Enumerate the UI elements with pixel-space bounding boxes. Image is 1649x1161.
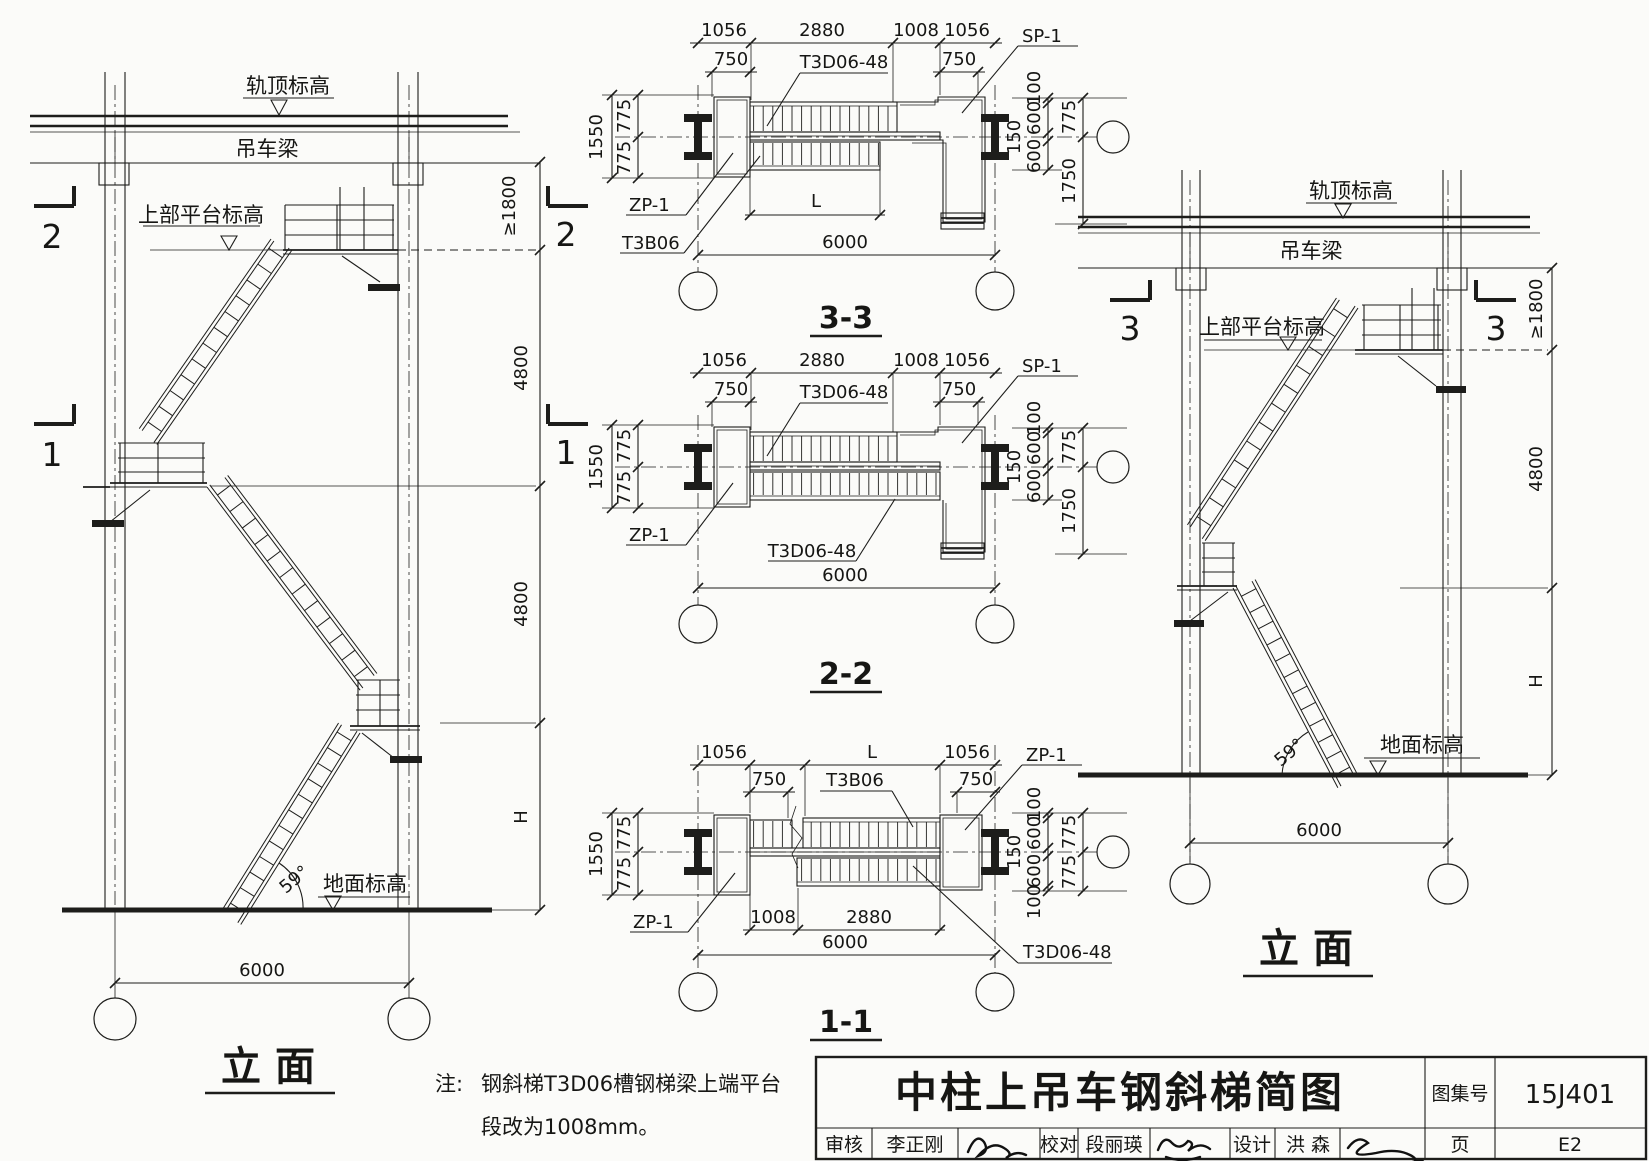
dim: 1750 — [1059, 158, 1080, 204]
svg-text:3: 3 — [1120, 309, 1141, 348]
dim: L — [867, 742, 877, 763]
note-prefix: 注: — [435, 1072, 463, 1096]
label-t3d06-48: T3D06-48 — [799, 52, 889, 73]
label-zp1: ZP-1 — [1026, 745, 1067, 766]
reviewer-label: 审核 — [825, 1134, 863, 1156]
atlas-number: 15J401 — [1525, 1080, 1615, 1110]
grid-bubble — [1097, 121, 1129, 153]
support-bracket — [368, 284, 400, 291]
title-block: 中柱上吊车钢斜梯简图 图集号 15J401 审核 李正刚 校对 段丽瑛 设计 洪… — [816, 1057, 1646, 1161]
designer-name: 洪 森 — [1286, 1134, 1330, 1156]
designer-label: 设计 — [1233, 1134, 1271, 1156]
platform-zp1 — [714, 815, 750, 895]
rail-top-level-label: 轨顶标高 — [246, 74, 330, 98]
dim: 600 — [1024, 101, 1045, 135]
dim: 775 — [614, 99, 635, 133]
support-bracket — [390, 756, 422, 763]
dim: 100 — [1024, 885, 1045, 919]
section-3-3: 1056 2880 1008 1056 750 750 1550 775 775… — [586, 20, 1129, 336]
section-title: 3-3 — [819, 301, 873, 336]
label-zp1: ZP-1 — [629, 195, 670, 216]
grid-bubble — [94, 998, 136, 1040]
dim: 775 — [614, 816, 635, 850]
label-t3d06-48: T3D06-48 — [799, 382, 889, 403]
dim-clearance: ≥1800 — [499, 176, 520, 237]
crane-beam-label: 吊车梁 — [1280, 239, 1343, 263]
dim: 100 — [1024, 71, 1045, 105]
label-t3d06-48: T3D06-48 — [1022, 942, 1112, 963]
platform-brace — [362, 733, 394, 758]
dim: 2880 — [799, 20, 845, 41]
dim: 775 — [1059, 815, 1080, 849]
reviewer-name: 李正刚 — [886, 1134, 943, 1156]
dim: 750 — [752, 769, 786, 790]
left-elevation-title: 立 面 — [221, 1044, 315, 1090]
grid-bubble — [976, 973, 1014, 1011]
dim: 6000 — [822, 232, 868, 253]
drawing-sheet: 轨顶标高 吊车梁 上部平台标高 — [0, 0, 1649, 1161]
grid-bubble — [976, 272, 1014, 310]
dim: 1750 — [1059, 488, 1080, 534]
dim: 775 — [614, 141, 635, 175]
dim: 600 — [1024, 431, 1045, 465]
dim: 1056 — [701, 20, 747, 41]
dim: 150 — [1004, 450, 1025, 484]
label-sp1: SP-1 — [1022, 26, 1062, 47]
page-number: E2 — [1558, 1134, 1582, 1156]
dim-4800: 4800 — [1526, 446, 1547, 492]
grid-bubble — [388, 998, 430, 1040]
grid-bubble — [679, 605, 717, 643]
section-marker-1-right: 1 — [548, 404, 588, 472]
grid-bubble — [679, 973, 717, 1011]
dim: 600 — [1024, 139, 1045, 173]
dim: L — [811, 191, 821, 212]
left-elevation-view: 轨顶标高 吊车梁 上部平台标高 — [30, 72, 588, 1093]
section-title: 1-1 — [819, 1005, 873, 1040]
section-marker-2-left: 2 — [34, 186, 74, 256]
dim: 1550 — [586, 114, 607, 160]
section-title: 2-2 — [819, 657, 873, 692]
span-dim: 6000 — [1296, 820, 1342, 841]
svg-text:3: 3 — [1486, 309, 1507, 348]
mid-platform — [1174, 543, 1237, 627]
support-bracket — [1174, 620, 1204, 627]
signature-reviewer — [968, 1139, 1026, 1158]
dim: 775 — [614, 471, 635, 505]
section-marker-3-left: 3 — [1110, 280, 1150, 348]
dim: 1056 — [944, 742, 990, 763]
section-2-2: 1056 2880 1008 1056 750 750 1550 775 775… — [586, 350, 1129, 692]
support-bracket — [92, 520, 124, 527]
right-elevation-dims: ≥1800 4800 H — [1526, 263, 1557, 780]
platform-brace — [110, 490, 150, 522]
dim: 600 — [1024, 816, 1045, 850]
rail-top-level-label: 轨顶标高 — [1309, 179, 1393, 203]
checker-name: 段丽瑛 — [1085, 1134, 1142, 1156]
left-elevation-dims: ≥1800 4800 4800 H — [499, 157, 545, 915]
dim: 600 — [1024, 854, 1045, 888]
dim: 750 — [942, 49, 976, 70]
platform-zp1-right — [940, 815, 982, 890]
right-elevation-view: 轨顶标高 吊车梁 上部平台标高 59° 地面标高 6000 立 面 — [1078, 170, 1557, 976]
dim-4800: 4800 — [511, 581, 532, 627]
level-symbol — [221, 236, 237, 250]
dim: 2880 — [799, 350, 845, 371]
angle-label: 59° — [1270, 734, 1308, 771]
svg-text:1: 1 — [42, 435, 63, 474]
dim: 1008 — [893, 350, 939, 371]
level-symbol — [271, 100, 287, 115]
support-bracket — [1436, 386, 1466, 393]
dim: 775 — [1059, 430, 1080, 464]
dim: 150 — [1004, 120, 1025, 154]
platform-brace — [1398, 356, 1436, 386]
dim: 1056 — [944, 20, 990, 41]
right-elevation-title: 立 面 — [1259, 926, 1353, 972]
note: 注: 钢斜梯T3D06槽钢梯梁上端平台 段改为1008mm。 — [435, 1072, 781, 1139]
dim: 750 — [942, 379, 976, 400]
checker-label: 校对 — [1040, 1134, 1078, 1156]
signature-checker — [1158, 1140, 1210, 1160]
label-sp1: SP-1 — [1022, 356, 1062, 377]
upper-platform-level-label: 上部平台标高 — [138, 203, 264, 227]
label-zp1: ZP-1 — [633, 912, 674, 933]
grid-bubble — [1428, 864, 1468, 904]
dim: 1550 — [586, 831, 607, 877]
dim: 775 — [1059, 855, 1080, 889]
dim: 1056 — [944, 350, 990, 371]
section-marker-1-left: 1 — [34, 404, 74, 474]
label-t3d06-48: T3D06-48 — [767, 541, 857, 562]
dim-4800: 4800 — [511, 345, 532, 391]
page-label: 页 — [1450, 1134, 1469, 1156]
section-1-1: 1056 L 1056 750 750 1550 775 775 100 600… — [586, 742, 1129, 1040]
dim: 775 — [614, 429, 635, 463]
dim: 2880 — [846, 907, 892, 928]
dim: 100 — [1024, 401, 1045, 435]
dim: 1550 — [586, 444, 607, 490]
grid-bubble — [679, 272, 717, 310]
mid-platform — [83, 443, 207, 527]
dim: 750 — [959, 769, 993, 790]
dim: 1008 — [750, 907, 796, 928]
dim-H: H — [511, 810, 532, 824]
upper-platform — [1355, 288, 1466, 393]
angle-label: 59° — [275, 861, 313, 898]
label-zp1: ZP-1 — [629, 525, 670, 546]
label-t3b06: T3B06 — [621, 233, 680, 254]
dim: 775 — [614, 857, 635, 891]
lower-platform — [350, 680, 422, 763]
drawing-title: 中柱上吊车钢斜梯简图 — [895, 1068, 1345, 1117]
signature-designer — [1348, 1139, 1423, 1161]
dim: 150 — [1004, 835, 1025, 869]
note-line2: 段改为1008mm。 — [481, 1115, 659, 1139]
note-line1: 钢斜梯T3D06槽钢梯梁上端平台 — [481, 1072, 781, 1096]
platform-brace — [1190, 592, 1228, 621]
dim: 1056 — [701, 742, 747, 763]
grid-bubble — [1170, 864, 1210, 904]
section-marker-2-right: 2 — [548, 186, 588, 254]
grid-bubble — [1097, 836, 1129, 868]
ground-level-label: 地面标高 — [323, 872, 407, 896]
dim: 775 — [1059, 100, 1080, 134]
ground-level-label: 地面标高 — [1380, 733, 1464, 757]
dim: 750 — [714, 49, 748, 70]
ladder-flight-2 — [207, 473, 379, 690]
section-marker-3-right: 3 — [1476, 280, 1516, 348]
dim: 1008 — [893, 20, 939, 41]
span-dim: 6000 — [239, 960, 285, 981]
column-corbel — [1176, 268, 1206, 290]
dim-H: H — [1526, 674, 1547, 688]
dim: 6000 — [822, 932, 868, 953]
svg-text:2: 2 — [42, 217, 63, 256]
atlas-number-label: 图集号 — [1431, 1083, 1488, 1105]
platform-sp1 — [897, 97, 985, 222]
dim: 6000 — [822, 565, 868, 586]
label-t3b06: T3B06 — [825, 770, 884, 791]
column-corbel — [1437, 268, 1467, 290]
dim: 600 — [1024, 469, 1045, 503]
grid-bubble — [976, 605, 1014, 643]
upper-platform — [283, 187, 400, 291]
dim: 1056 — [701, 350, 747, 371]
platform-brace — [342, 256, 380, 282]
dim: 750 — [714, 379, 748, 400]
ladder-flight-1 — [138, 237, 292, 445]
svg-text:1: 1 — [556, 433, 577, 472]
upper-platform-level-label: 上部平台标高 — [1199, 315, 1325, 339]
grid-bubble — [1097, 451, 1129, 483]
dim-clearance: ≥1800 — [1526, 279, 1547, 340]
svg-text:2: 2 — [556, 215, 577, 254]
crane-beam-label: 吊车梁 — [236, 137, 299, 161]
